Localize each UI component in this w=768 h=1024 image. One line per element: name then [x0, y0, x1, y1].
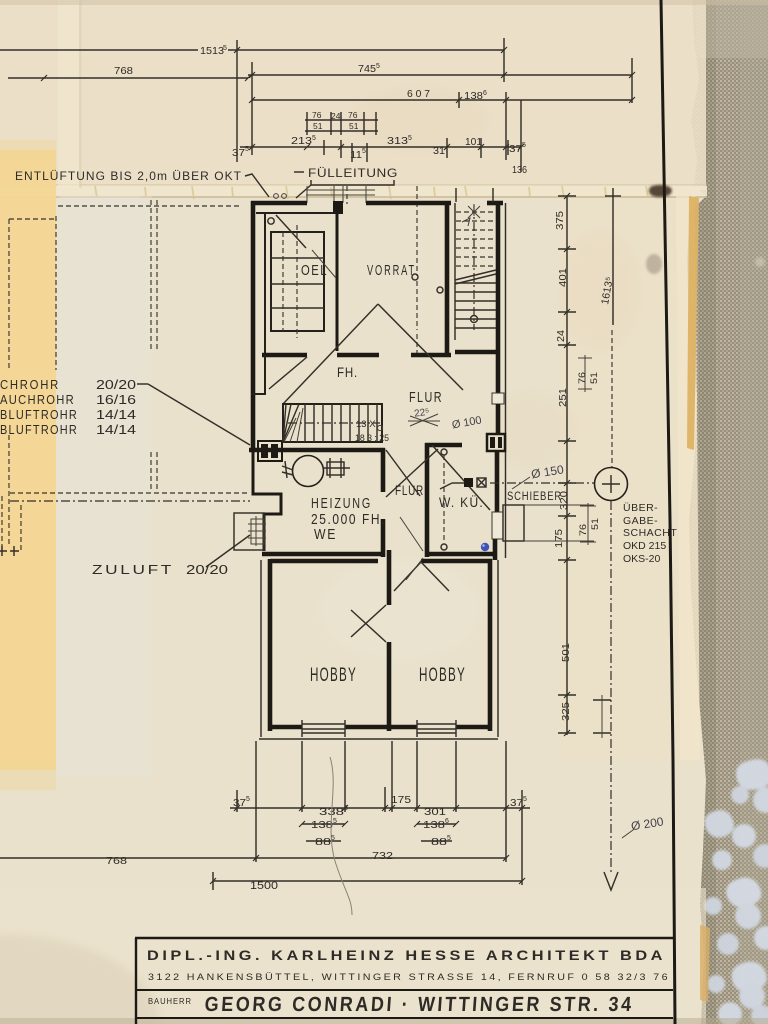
svg-text:5: 5	[376, 63, 380, 70]
svg-text:ENTLÜFTUNG BIS 2,0m ÜBER OKT: ENTLÜFTUNG BIS 2,0m ÜBER OKT	[15, 171, 242, 183]
svg-text:51: 51	[349, 121, 359, 131]
svg-text:138: 138	[423, 820, 446, 831]
svg-text:6: 6	[483, 90, 487, 97]
svg-text:51: 51	[590, 518, 600, 530]
svg-text:401: 401	[558, 268, 569, 287]
svg-text:14/14: 14/14	[96, 422, 136, 437]
svg-text:5: 5	[362, 148, 366, 155]
svg-text:3122 HANKENSBÜTTEL, WITTINGER: 3122 HANKENSBÜTTEL, WITTINGER STRASSE 14…	[148, 972, 670, 982]
svg-text:14/14: 14/14	[96, 407, 136, 422]
svg-text:251: 251	[558, 388, 569, 407]
svg-text:SCHIEBER: SCHIEBER	[507, 491, 562, 503]
svg-text:325: 325	[561, 702, 572, 721]
svg-text:5: 5	[223, 45, 227, 52]
svg-text:76: 76	[348, 110, 358, 120]
svg-text:51: 51	[589, 372, 599, 384]
svg-text:1500: 1500	[250, 880, 278, 892]
svg-text:88: 88	[315, 837, 332, 848]
svg-text:5: 5	[246, 796, 250, 803]
svg-text:BAUHERR: BAUHERR	[148, 997, 192, 1006]
svg-text:768: 768	[106, 856, 128, 867]
svg-text:5: 5	[245, 146, 249, 153]
svg-text:20/20: 20/20	[96, 377, 136, 392]
svg-text:BLUFTROHR: BLUFTROHR	[0, 422, 78, 437]
svg-text:768: 768	[114, 66, 133, 77]
svg-text:FLUR: FLUR	[395, 482, 424, 498]
svg-text:138: 138	[464, 91, 483, 102]
svg-text:FÜLLEITUNG: FÜLLEITUNG	[308, 168, 398, 180]
svg-text:DIPL.-ING. KARLHEINZ HESSE ARC: DIPL.-ING. KARLHEINZ HESSE ARCHITEKT BDA	[147, 948, 666, 963]
svg-text:1513: 1513	[200, 45, 224, 57]
svg-text:HOBBY: HOBBY	[310, 665, 357, 686]
svg-text:88: 88	[431, 837, 448, 848]
svg-text:24: 24	[331, 111, 341, 121]
svg-text:31: 31	[433, 146, 445, 157]
svg-text:GABE-: GABE-	[623, 515, 658, 527]
svg-text:301: 301	[424, 807, 447, 818]
svg-text:FLUR: FLUR	[409, 389, 443, 406]
svg-text:WE: WE	[314, 526, 337, 543]
svg-text:5: 5	[523, 796, 527, 803]
svg-text:AUCHROHR: AUCHROHR	[0, 392, 75, 407]
svg-text:37: 37	[233, 798, 247, 809]
svg-text:16/16: 16/16	[96, 392, 136, 407]
svg-text:VORRAT: VORRAT	[367, 262, 416, 279]
svg-text:BLUFTROHR: BLUFTROHR	[0, 407, 78, 422]
svg-text:HEIZUNG: HEIZUNG	[311, 495, 372, 512]
svg-text:6 0 7: 6 0 7	[407, 89, 430, 100]
svg-text:OKD 215: OKD 215	[623, 540, 666, 552]
svg-text:W. KÜ.: W. KÜ.	[439, 493, 484, 510]
svg-text:101: 101	[465, 137, 482, 148]
svg-text:13 X: 13 X	[356, 419, 376, 430]
svg-text:GEORG CONRADI · WITTINGER STR.: GEORG CONRADI · WITTINGER STR. 34	[204, 993, 635, 1016]
svg-text:CHROHR: CHROHR	[0, 377, 60, 392]
svg-text:138: 138	[311, 820, 334, 831]
svg-text:320: 320	[559, 491, 570, 510]
svg-text:136: 136	[512, 165, 527, 176]
svg-text:5: 5	[333, 818, 337, 825]
svg-text:20/20: 20/20	[186, 562, 228, 577]
svg-text:24: 24	[556, 330, 567, 342]
svg-text:FH.: FH.	[337, 364, 358, 380]
svg-text:501: 501	[561, 643, 572, 662]
svg-text:6: 6	[445, 818, 449, 825]
svg-text:37: 37	[510, 798, 524, 809]
svg-text:ÜBER-: ÜBER-	[623, 502, 658, 514]
svg-text:51: 51	[313, 121, 323, 131]
svg-text:745: 745	[358, 64, 376, 75]
svg-text:76: 76	[578, 524, 588, 536]
svg-text:5: 5	[312, 135, 316, 142]
svg-text:SCHACHT: SCHACHT	[623, 527, 677, 539]
svg-text:ZULUFT: ZULUFT	[92, 562, 174, 577]
svg-text:18 3 : 25: 18 3 : 25	[355, 433, 389, 444]
svg-text:175: 175	[391, 795, 412, 806]
svg-text:76: 76	[312, 110, 322, 120]
svg-text:5: 5	[447, 835, 451, 842]
svg-text:OKS-20: OKS-20	[623, 553, 661, 565]
svg-text:37: 37	[232, 148, 246, 159]
svg-text:5: 5	[408, 135, 412, 142]
svg-text:HOBBY: HOBBY	[419, 665, 466, 686]
svg-text:313: 313	[387, 136, 409, 147]
svg-text:175: 175	[554, 529, 565, 548]
svg-text:732: 732	[372, 851, 394, 862]
svg-text:375: 375	[555, 211, 566, 230]
